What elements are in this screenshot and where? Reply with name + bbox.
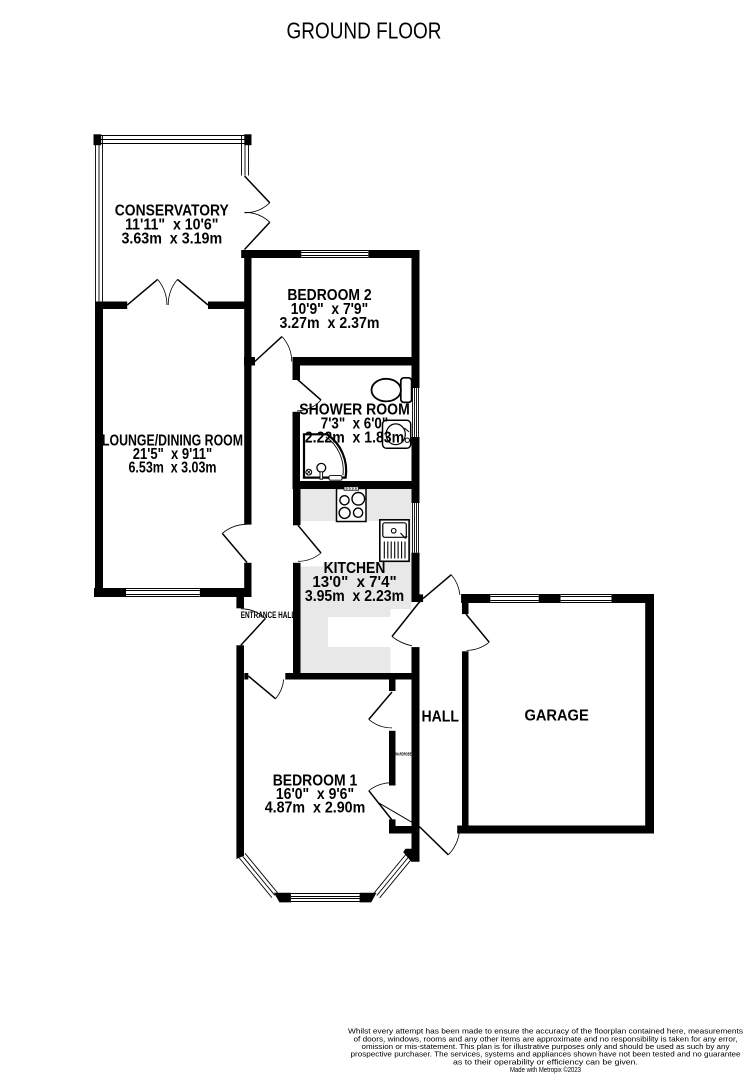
- svg-text:WARDROBE: WARDROBE: [396, 752, 412, 757]
- svg-text:HALL: HALL: [421, 709, 459, 726]
- svg-text:Made with Metropix ©2023: Made with Metropix ©2023: [510, 1065, 581, 1074]
- svg-text:2.22m x 1.83m: 2.22m x 1.83m: [305, 430, 404, 447]
- svg-text:GROUND FLOOR: GROUND FLOOR: [287, 17, 442, 43]
- svg-text:ENTRANCE HALL: ENTRANCE HALL: [241, 610, 296, 620]
- svg-text:4.87m x 2.90m: 4.87m x 2.90m: [265, 799, 366, 816]
- svg-text:6.53m x 3.03m: 6.53m x 3.03m: [129, 459, 217, 476]
- svg-text:3.27m x 2.37m: 3.27m x 2.37m: [280, 315, 380, 332]
- svg-text:GARAGE: GARAGE: [524, 708, 588, 725]
- svg-text:3.95m x 2.23m: 3.95m x 2.23m: [305, 588, 404, 605]
- svg-text:3.63m x 3.19m: 3.63m x 3.19m: [121, 231, 222, 248]
